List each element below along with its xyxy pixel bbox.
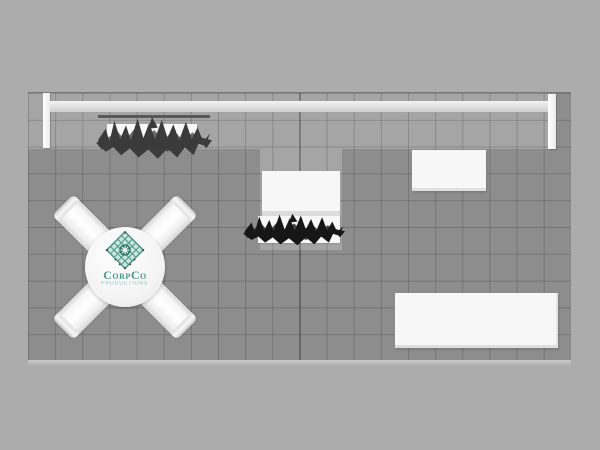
upright-post-left <box>43 93 50 148</box>
logo-name: CorpCo <box>103 270 146 281</box>
floor-front-edge <box>28 360 571 365</box>
upright-post-right <box>548 94 556 149</box>
plant-foliage-icon <box>96 115 212 161</box>
counter-center <box>262 171 340 218</box>
round-table-top: CorpCo PRODUCTIONS <box>85 227 165 307</box>
booth-render: CorpCo PRODUCTIONS <box>0 0 600 450</box>
plant-foliage-icon <box>243 212 345 247</box>
table-bottom-right <box>395 293 558 348</box>
corpco-logo-icon <box>104 230 146 272</box>
counter-right <box>412 150 486 191</box>
logo-subtitle: PRODUCTIONS <box>101 281 148 286</box>
back-wall-beam <box>50 101 548 112</box>
